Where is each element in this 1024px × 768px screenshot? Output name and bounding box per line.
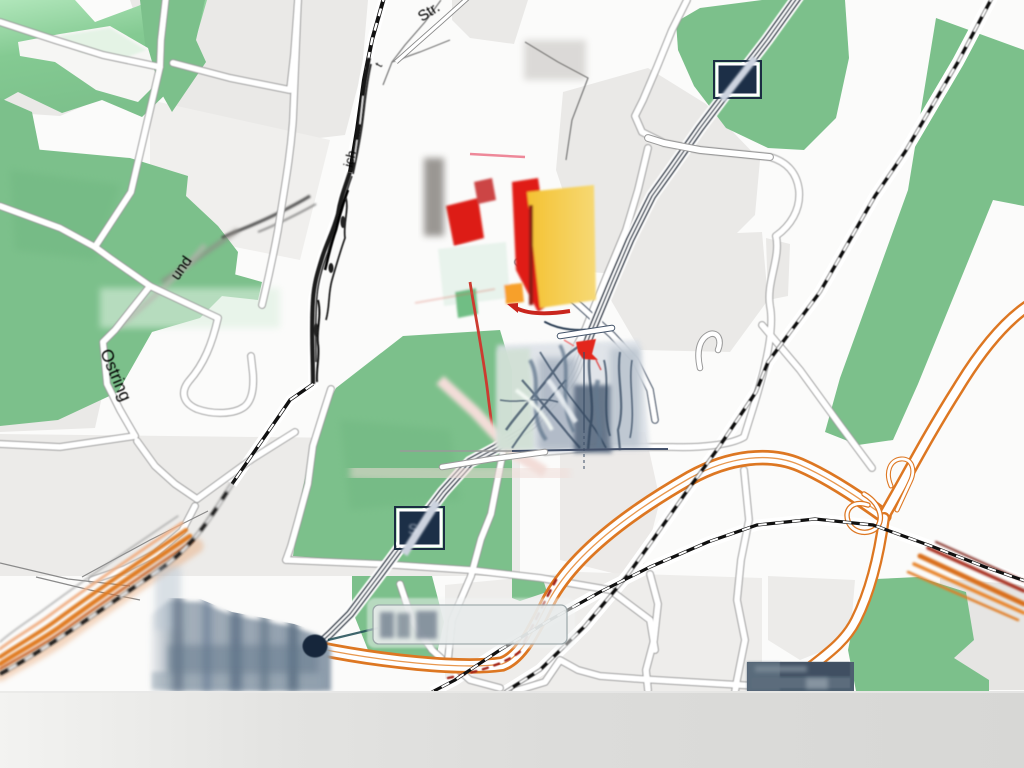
svg-text:S: S: [408, 521, 418, 538]
